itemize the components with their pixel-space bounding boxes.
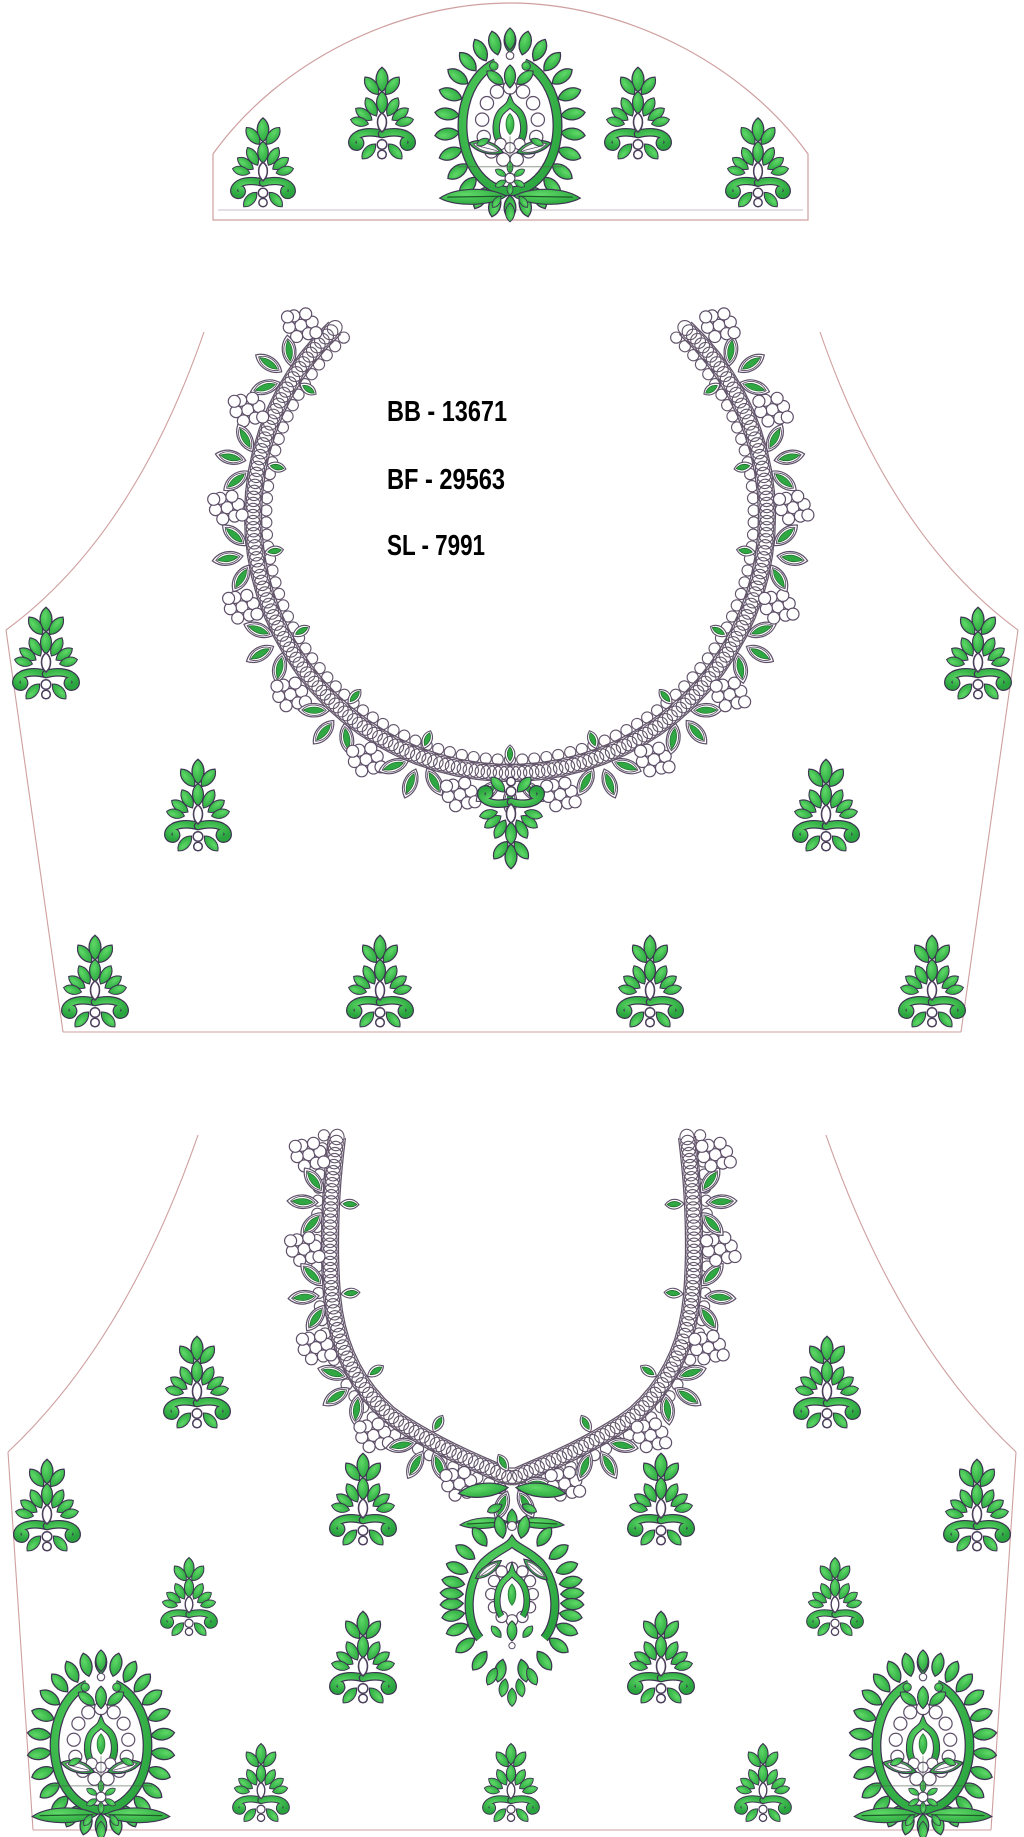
svg-text:BF - 29563: BF - 29563 xyxy=(387,464,505,496)
svg-text:BB - 13671: BB - 13671 xyxy=(387,396,507,428)
svg-text:SL - 7991: SL - 7991 xyxy=(387,530,485,562)
